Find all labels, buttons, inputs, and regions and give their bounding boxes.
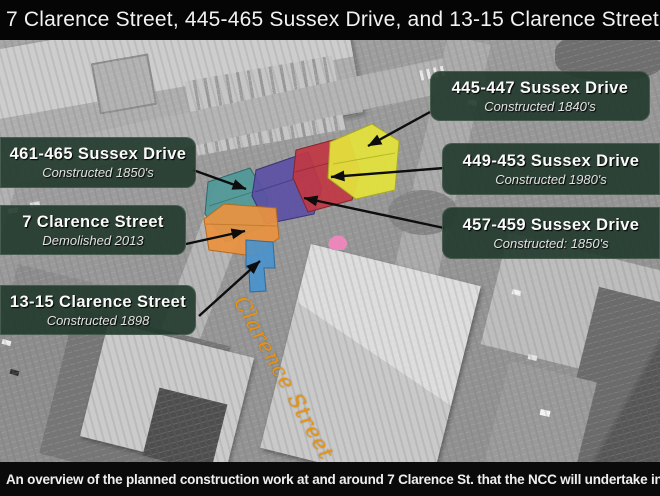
callout-13-15-clarence: 13-15 Clarence Street Constructed 1898 bbox=[0, 285, 196, 335]
page-title: 7 Clarence Street, 445-465 Sussex Drive,… bbox=[0, 8, 659, 32]
callout-subtitle: Constructed 1980's bbox=[495, 172, 607, 188]
dome-overlay bbox=[328, 235, 347, 250]
caption-bar: An overview of the planned construction … bbox=[0, 462, 660, 496]
callout-449-453: 449-453 Sussex Drive Constructed 1980's bbox=[442, 143, 660, 195]
callout-461-465: 461-465 Sussex Drive Constructed 1850's bbox=[0, 137, 196, 188]
callout-title: 461-465 Sussex Drive bbox=[10, 144, 187, 165]
callout-7-clarence: 7 Clarence Street Demolished 2013 bbox=[0, 205, 186, 255]
callout-subtitle: Constructed 1850's bbox=[42, 165, 154, 181]
callout-subtitle: Constructed 1840's bbox=[484, 99, 596, 115]
callout-subtitle: Constructed 1898 bbox=[47, 313, 150, 329]
screenshot-root: 7 Clarence Street, 445-465 Sussex Drive,… bbox=[0, 0, 660, 496]
callout-title: 7 Clarence Street bbox=[22, 212, 164, 233]
building-overlay-13-15-clarence bbox=[246, 240, 275, 292]
callout-title: 445-447 Sussex Drive bbox=[452, 78, 629, 99]
callout-subtitle: Constructed: 1850's bbox=[493, 236, 608, 252]
callout-445-447: 445-447 Sussex Drive Constructed 1840's bbox=[430, 71, 650, 121]
arrow-to-457-459 bbox=[304, 198, 444, 228]
callout-subtitle: Demolished 2013 bbox=[42, 233, 143, 249]
callout-457-459: 457-459 Sussex Drive Constructed: 1850's bbox=[442, 207, 660, 259]
callout-title: 449-453 Sussex Drive bbox=[463, 151, 640, 172]
aerial-photo: Clarence Street 445-447 Sussex Drive Con… bbox=[0, 40, 660, 462]
callout-title: 13-15 Clarence Street bbox=[10, 292, 186, 313]
callout-title: 457-459 Sussex Drive bbox=[463, 215, 640, 236]
title-bar: 7 Clarence Street, 445-465 Sussex Drive,… bbox=[0, 0, 660, 40]
caption-text: An overview of the planned construction … bbox=[0, 472, 660, 487]
